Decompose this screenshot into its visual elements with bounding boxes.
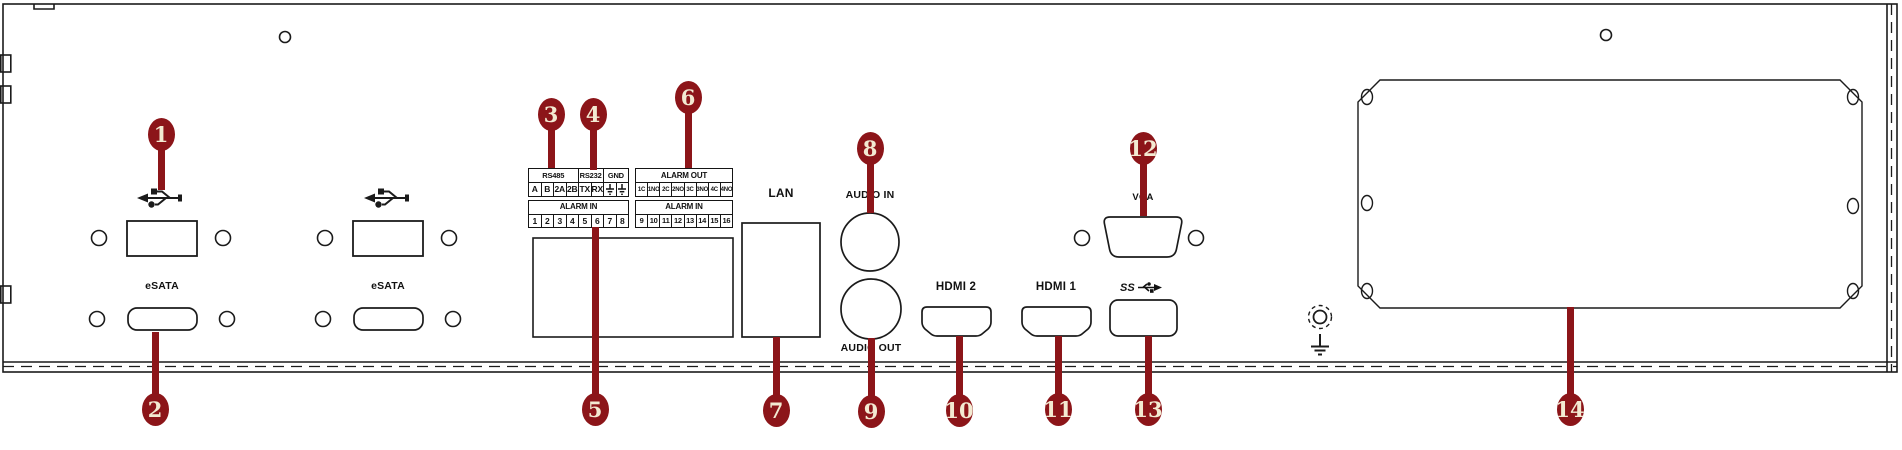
terminal-block-serial: RS485RS232GNDAB2A2BTXRX (528, 168, 629, 197)
callout-stem-5 (592, 227, 599, 396)
callout-stem-8 (867, 160, 874, 213)
callout-11: 11 (1045, 393, 1072, 426)
panel-artwork (0, 0, 1902, 450)
lan-label: LAN (768, 186, 793, 200)
terminal-pin: 2A (553, 183, 566, 196)
terminal-pin: 14 (696, 215, 708, 228)
callout-stem-6 (685, 109, 692, 168)
terminal-pin: 4NO (720, 183, 732, 196)
usb3-superspeed-icon (1137, 281, 1163, 294)
callout-5: 5 (582, 393, 609, 426)
ground-pin-icon (605, 183, 615, 196)
callout-7: 7 (763, 394, 790, 427)
callout-stem-13 (1145, 336, 1152, 396)
callout-stem-12 (1140, 160, 1147, 216)
terminal-pin: 1NO (647, 183, 659, 196)
terminal-pin: 3NO (696, 183, 708, 196)
callout-12: 12 (1130, 132, 1157, 165)
usb3-ss-label: SS (1120, 281, 1163, 294)
terminal-pin: 2NO (671, 183, 683, 196)
terminal-block-alarm-in-1: ALARM IN12345678 (528, 200, 629, 228)
terminal-pin: 7 (603, 215, 616, 228)
terminal-pin: 5 (578, 215, 591, 228)
terminal-block-alarm-out: ALARM OUT1C1NO2C2NO3C3NO4C4NO (635, 168, 733, 197)
terminal-pin: TX (578, 183, 591, 196)
terminal-group-label: ALARM OUT (636, 169, 732, 182)
terminal-pin (616, 183, 629, 196)
terminal-pin: 4C (708, 183, 720, 196)
terminal-pin: 12 (671, 215, 683, 228)
callout-6: 6 (675, 81, 702, 114)
terminal-block-alarm-in-2: ALARM IN910111213141516 (635, 200, 733, 228)
terminal-pin: 15 (708, 215, 720, 228)
terminal-group-label: RS485 (529, 169, 578, 182)
esata-right-label: eSATA (371, 280, 405, 292)
terminal-pin: 2B (566, 183, 579, 196)
callout-1: 1 (148, 118, 175, 151)
hdmi-2-label: HDMI 2 (936, 281, 976, 293)
callout-stem-4 (590, 126, 597, 170)
terminal-pin: 6 (591, 215, 604, 228)
callout-stem-3 (548, 126, 555, 168)
terminal-pin: 1C (636, 183, 647, 196)
callout-stem-1 (158, 146, 165, 190)
callout-stem-14 (1567, 307, 1574, 396)
callout-14: 14 (1557, 393, 1584, 426)
callout-stem-9 (868, 338, 875, 398)
terminal-pin: 2 (541, 215, 554, 228)
terminal-pin: 16 (720, 215, 732, 228)
terminal-pin: B (541, 183, 554, 196)
callout-2: 2 (142, 393, 169, 426)
callout-10: 10 (946, 394, 973, 427)
terminal-pin: A (529, 183, 541, 196)
callout-stem-10 (956, 336, 963, 397)
terminal-pin: 3C (684, 183, 696, 196)
esata-left-label: eSATA (145, 280, 179, 292)
terminal-pin: 4 (566, 215, 579, 228)
terminal-pin: 9 (636, 215, 647, 228)
callout-8: 8 (857, 132, 884, 165)
terminal-group-label: ALARM IN (529, 201, 628, 214)
terminal-group-label: GND (603, 169, 628, 182)
callout-stem-7 (773, 337, 780, 397)
callout-stem-2 (152, 332, 159, 396)
hdmi-1-label: HDMI 1 (1036, 281, 1076, 293)
callout-3: 3 (538, 98, 565, 131)
terminal-pin: 13 (684, 215, 696, 228)
ground-pin-icon (617, 183, 627, 196)
rear-panel-diagram: eSATA eSATA LAN AUDIO IN AUDIO OUT HDMI … (0, 0, 1902, 450)
terminal-pin: 10 (647, 215, 659, 228)
terminal-pin: 3 (553, 215, 566, 228)
callout-stem-11 (1055, 336, 1062, 396)
terminal-pin: RX (591, 183, 604, 196)
terminal-pin: 8 (616, 215, 629, 228)
terminal-pin: 2C (659, 183, 671, 196)
callout-4: 4 (580, 98, 607, 131)
terminal-group-label: ALARM IN (636, 201, 732, 214)
terminal-pin (603, 183, 616, 196)
ss-text: SS (1120, 282, 1135, 294)
terminal-pin: 1 (529, 215, 541, 228)
callout-9: 9 (858, 395, 885, 428)
terminal-group-label: RS232 (578, 169, 603, 182)
callout-13: 13 (1135, 393, 1162, 426)
terminal-pin: 11 (659, 215, 671, 228)
panel-outline (3, 4, 1897, 372)
